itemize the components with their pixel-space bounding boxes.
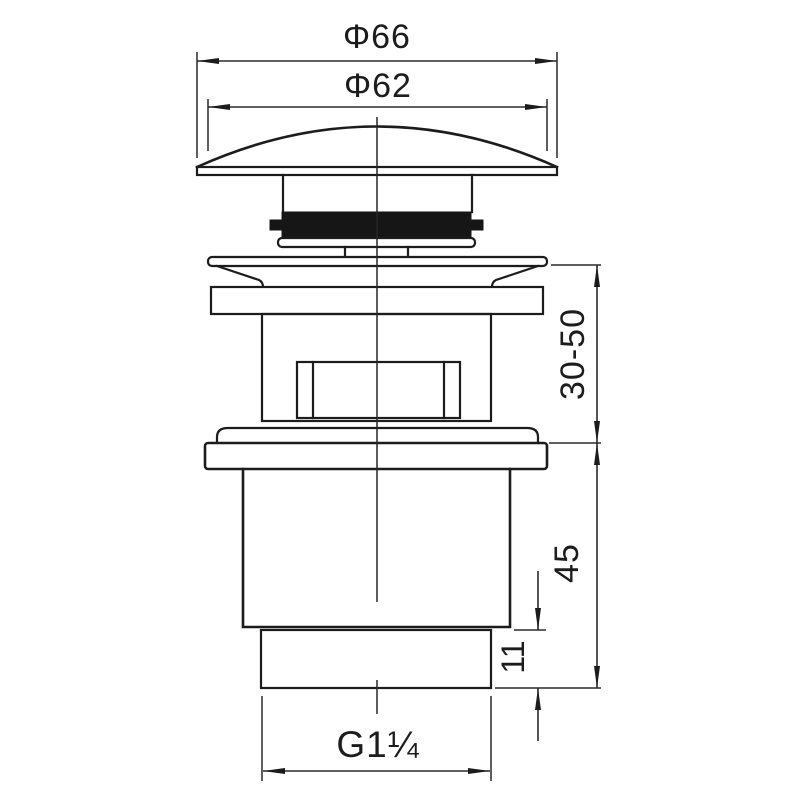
drain-technical-drawing: Φ66 Φ62 30-50 45 11 G1¼ xyxy=(0,0,800,800)
gasket-left-tab xyxy=(270,220,284,230)
flange-slope-right xyxy=(492,266,538,287)
range-label: 30-50 xyxy=(554,308,592,400)
height-label: 45 xyxy=(548,543,586,583)
locking-nut xyxy=(205,443,547,469)
flange-slope-left xyxy=(217,266,263,287)
tail-length-label: 11 xyxy=(495,640,531,673)
phi62-label: Φ62 xyxy=(344,67,412,105)
phi66-label: Φ66 xyxy=(343,18,411,56)
gasket-right-tab xyxy=(469,220,483,230)
overflow-window xyxy=(297,362,460,418)
lower-thread-section xyxy=(261,630,491,688)
technical-drawing-canvas: Φ66 Φ62 30-50 45 11 G1¼ xyxy=(0,0,800,800)
thread-size-label: G1¼ xyxy=(336,724,419,765)
